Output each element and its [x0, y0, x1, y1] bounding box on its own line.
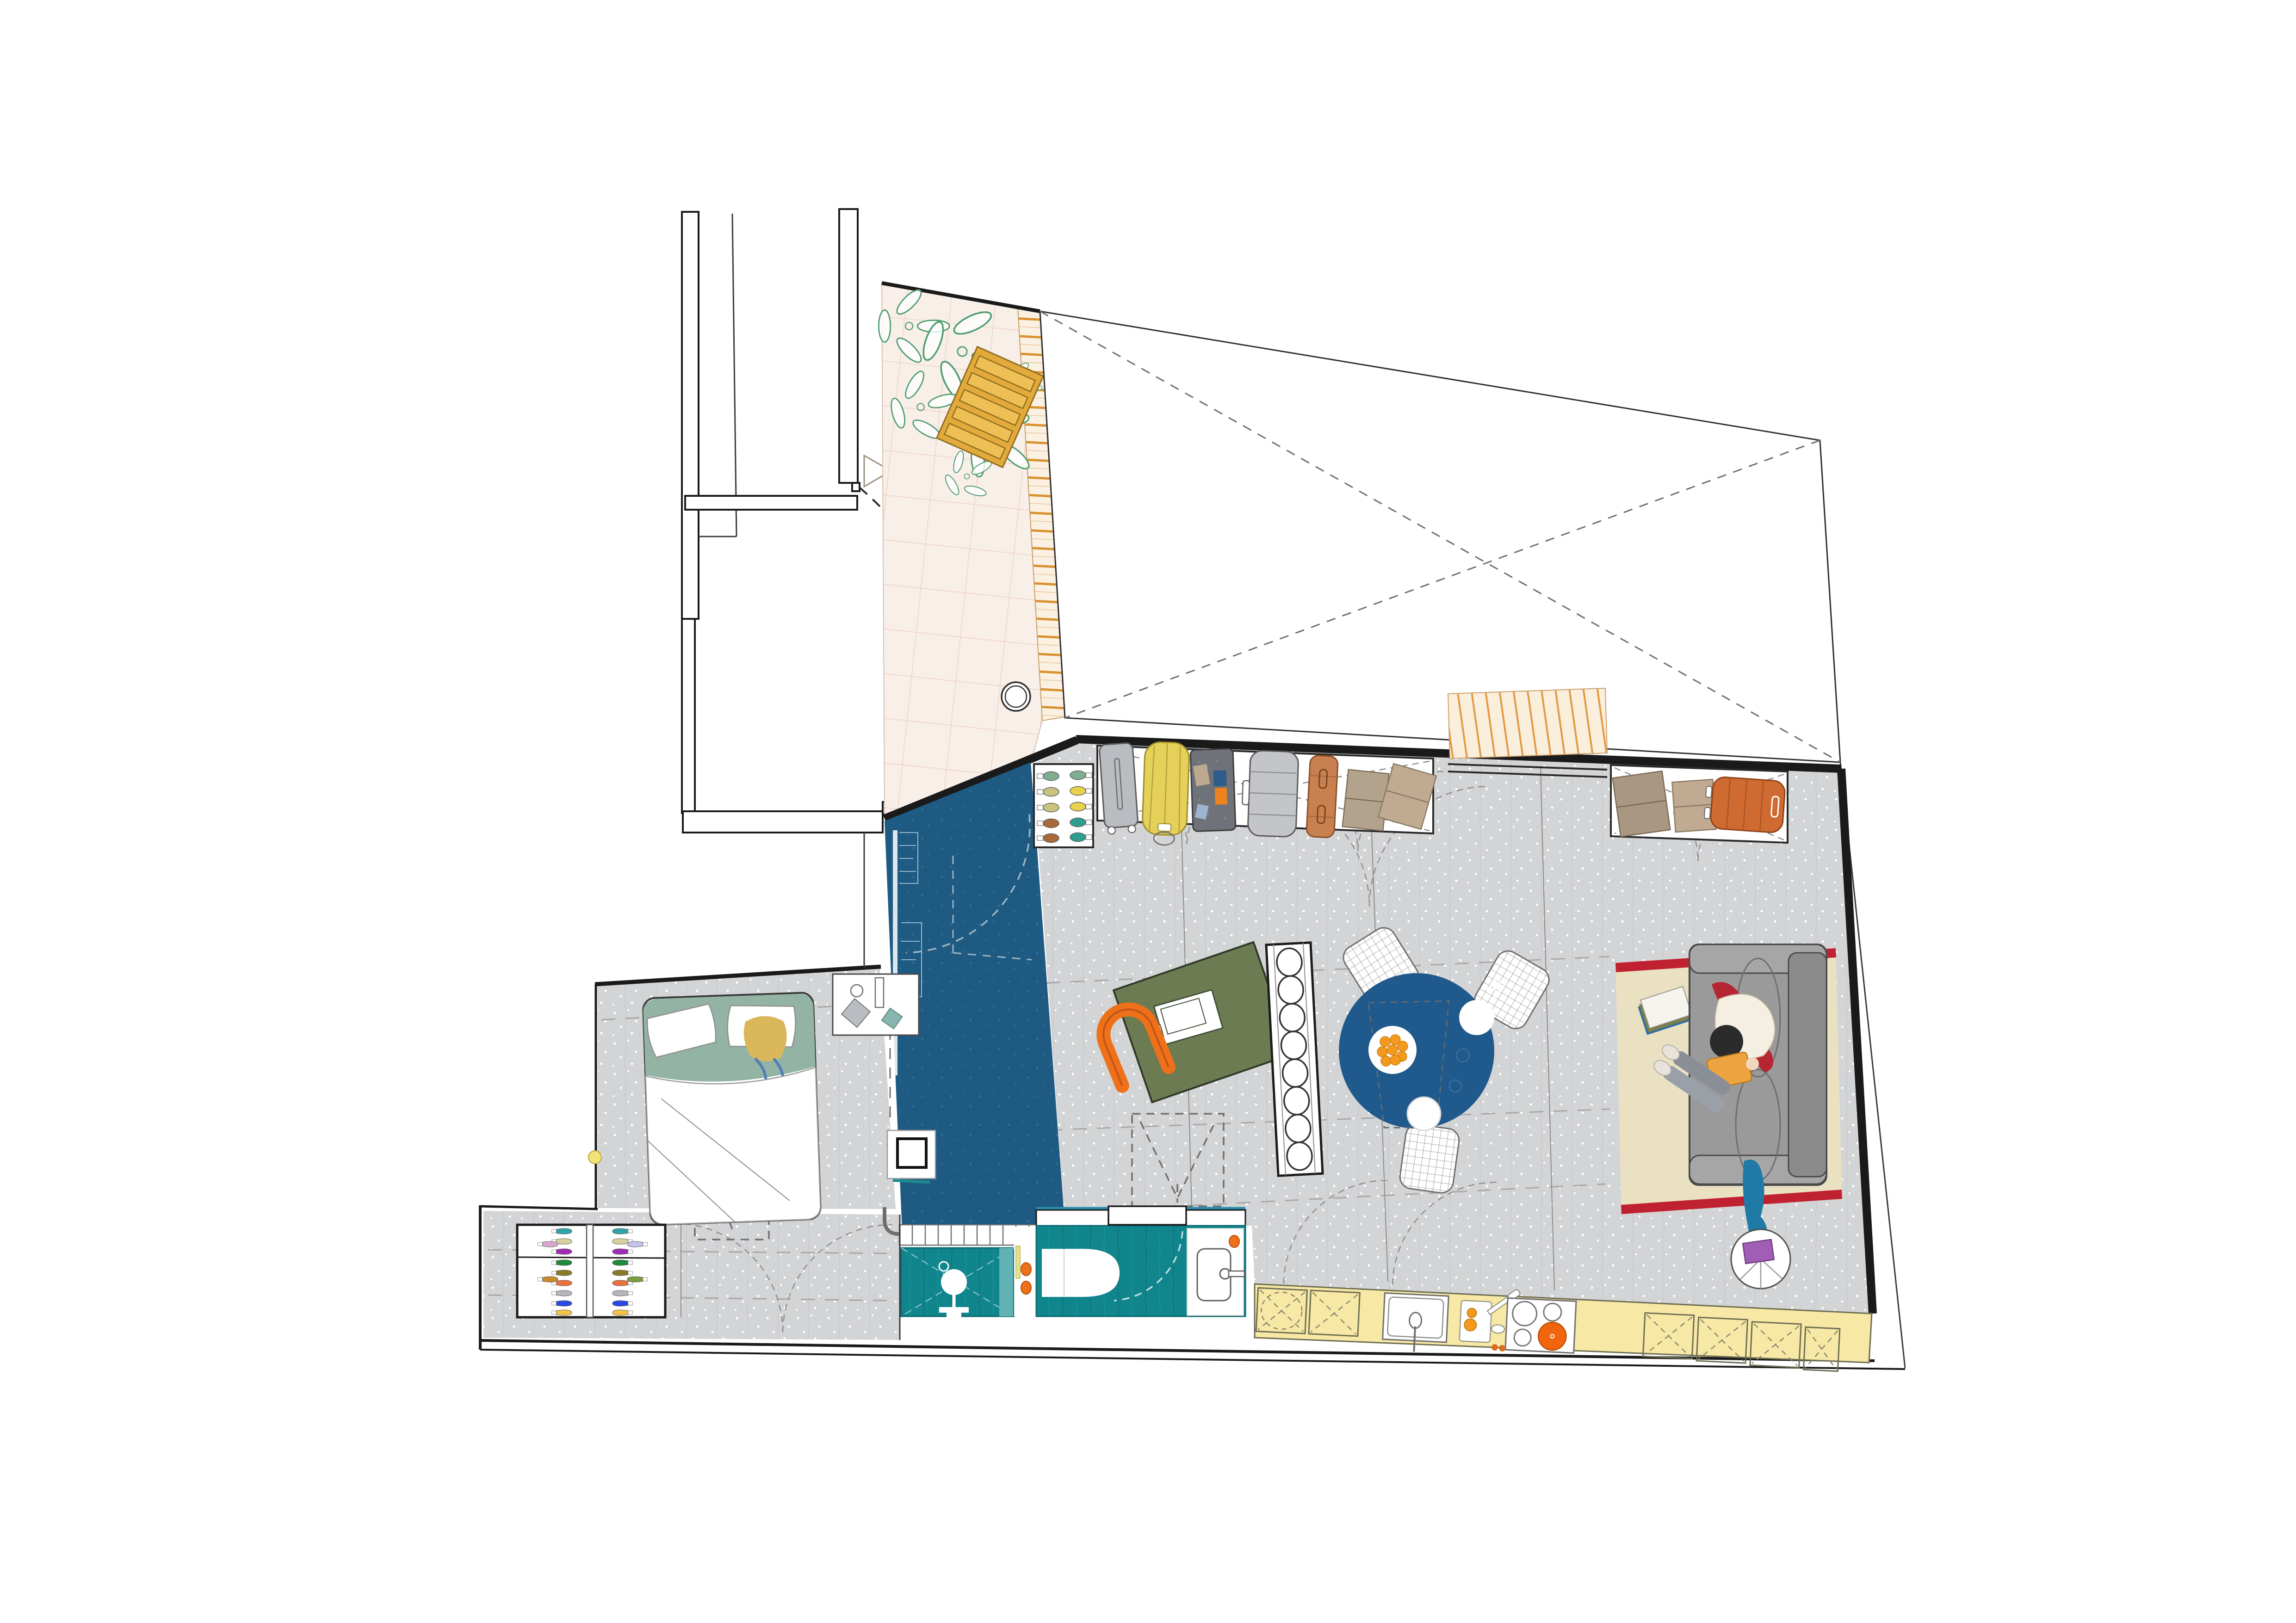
bathroom [1036, 1206, 1245, 1316]
orange-suitcase [1703, 776, 1785, 833]
bedside-bottle [875, 978, 884, 1007]
stair-right-wall [839, 209, 858, 483]
toilet [1042, 1249, 1120, 1297]
orange-pot [1538, 1322, 1567, 1351]
landing-mid-wall [685, 496, 857, 510]
fruit-plate [1368, 1026, 1417, 1074]
bedside-table [833, 974, 919, 1035]
folded-blanket-a [1343, 770, 1389, 831]
terrace [879, 283, 1065, 818]
landing-bottom-wall [683, 811, 883, 833]
floor-plan-page: Apartment floor plan — studio with terra… [0, 0, 2296, 1623]
hall-sliding-track [893, 830, 897, 1075]
shoe-rack [517, 1225, 665, 1317]
cooktop [1505, 1298, 1576, 1353]
purple-book [1743, 1240, 1774, 1264]
right-storage-cabinet [1611, 765, 1788, 843]
bathroom-door-leaf [1108, 1206, 1186, 1225]
duvet [645, 1068, 821, 1225]
leather-case [1306, 755, 1338, 838]
column-teal-mark [893, 1180, 930, 1182]
soap-dispenser [1229, 1235, 1239, 1247]
stair-left-wall-lower [682, 619, 695, 813]
luggage-cabinet [1097, 741, 1436, 845]
structural-column [897, 1139, 926, 1167]
person-hand [1746, 1057, 1759, 1070]
plate-bottom [1407, 1097, 1441, 1130]
corridor-top-wall [480, 1206, 598, 1209]
stair-wall-notch [852, 483, 860, 491]
stair-inner-line [732, 214, 736, 537]
floor-drain-icon [1002, 682, 1030, 711]
vanity [1187, 1228, 1244, 1315]
storage-crate [1190, 748, 1236, 831]
rattan-chair-3 [1399, 1123, 1461, 1195]
bed [643, 993, 821, 1225]
yellow-duffel-bag [1142, 741, 1190, 845]
floor-plan-canvas: Apartment floor plan — studio with terra… [0, 0, 2296, 1623]
bedroom-door-handle [588, 1151, 601, 1164]
shoe-cabinet [1034, 764, 1093, 847]
gray-case [1241, 750, 1299, 837]
gray-trolley-suitcase [1099, 743, 1139, 835]
stair-left-wall [682, 212, 699, 619]
shower-screen [999, 1248, 1013, 1316]
folded-blanket-c [1613, 771, 1671, 837]
terrace-tiled-floor [882, 283, 1042, 818]
side-table [1731, 1229, 1790, 1289]
shower-door [1014, 1227, 1036, 1316]
sofa-backrest [1789, 953, 1826, 1177]
